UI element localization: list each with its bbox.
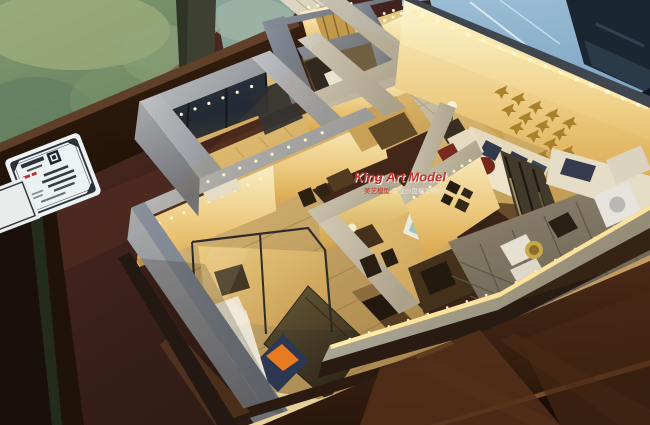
svg-text:King Art Model: King Art Model bbox=[354, 170, 446, 185]
svg-text:美艺模型 专业沙盘模型制作: 美艺模型 专业沙盘模型制作 bbox=[364, 186, 444, 195]
